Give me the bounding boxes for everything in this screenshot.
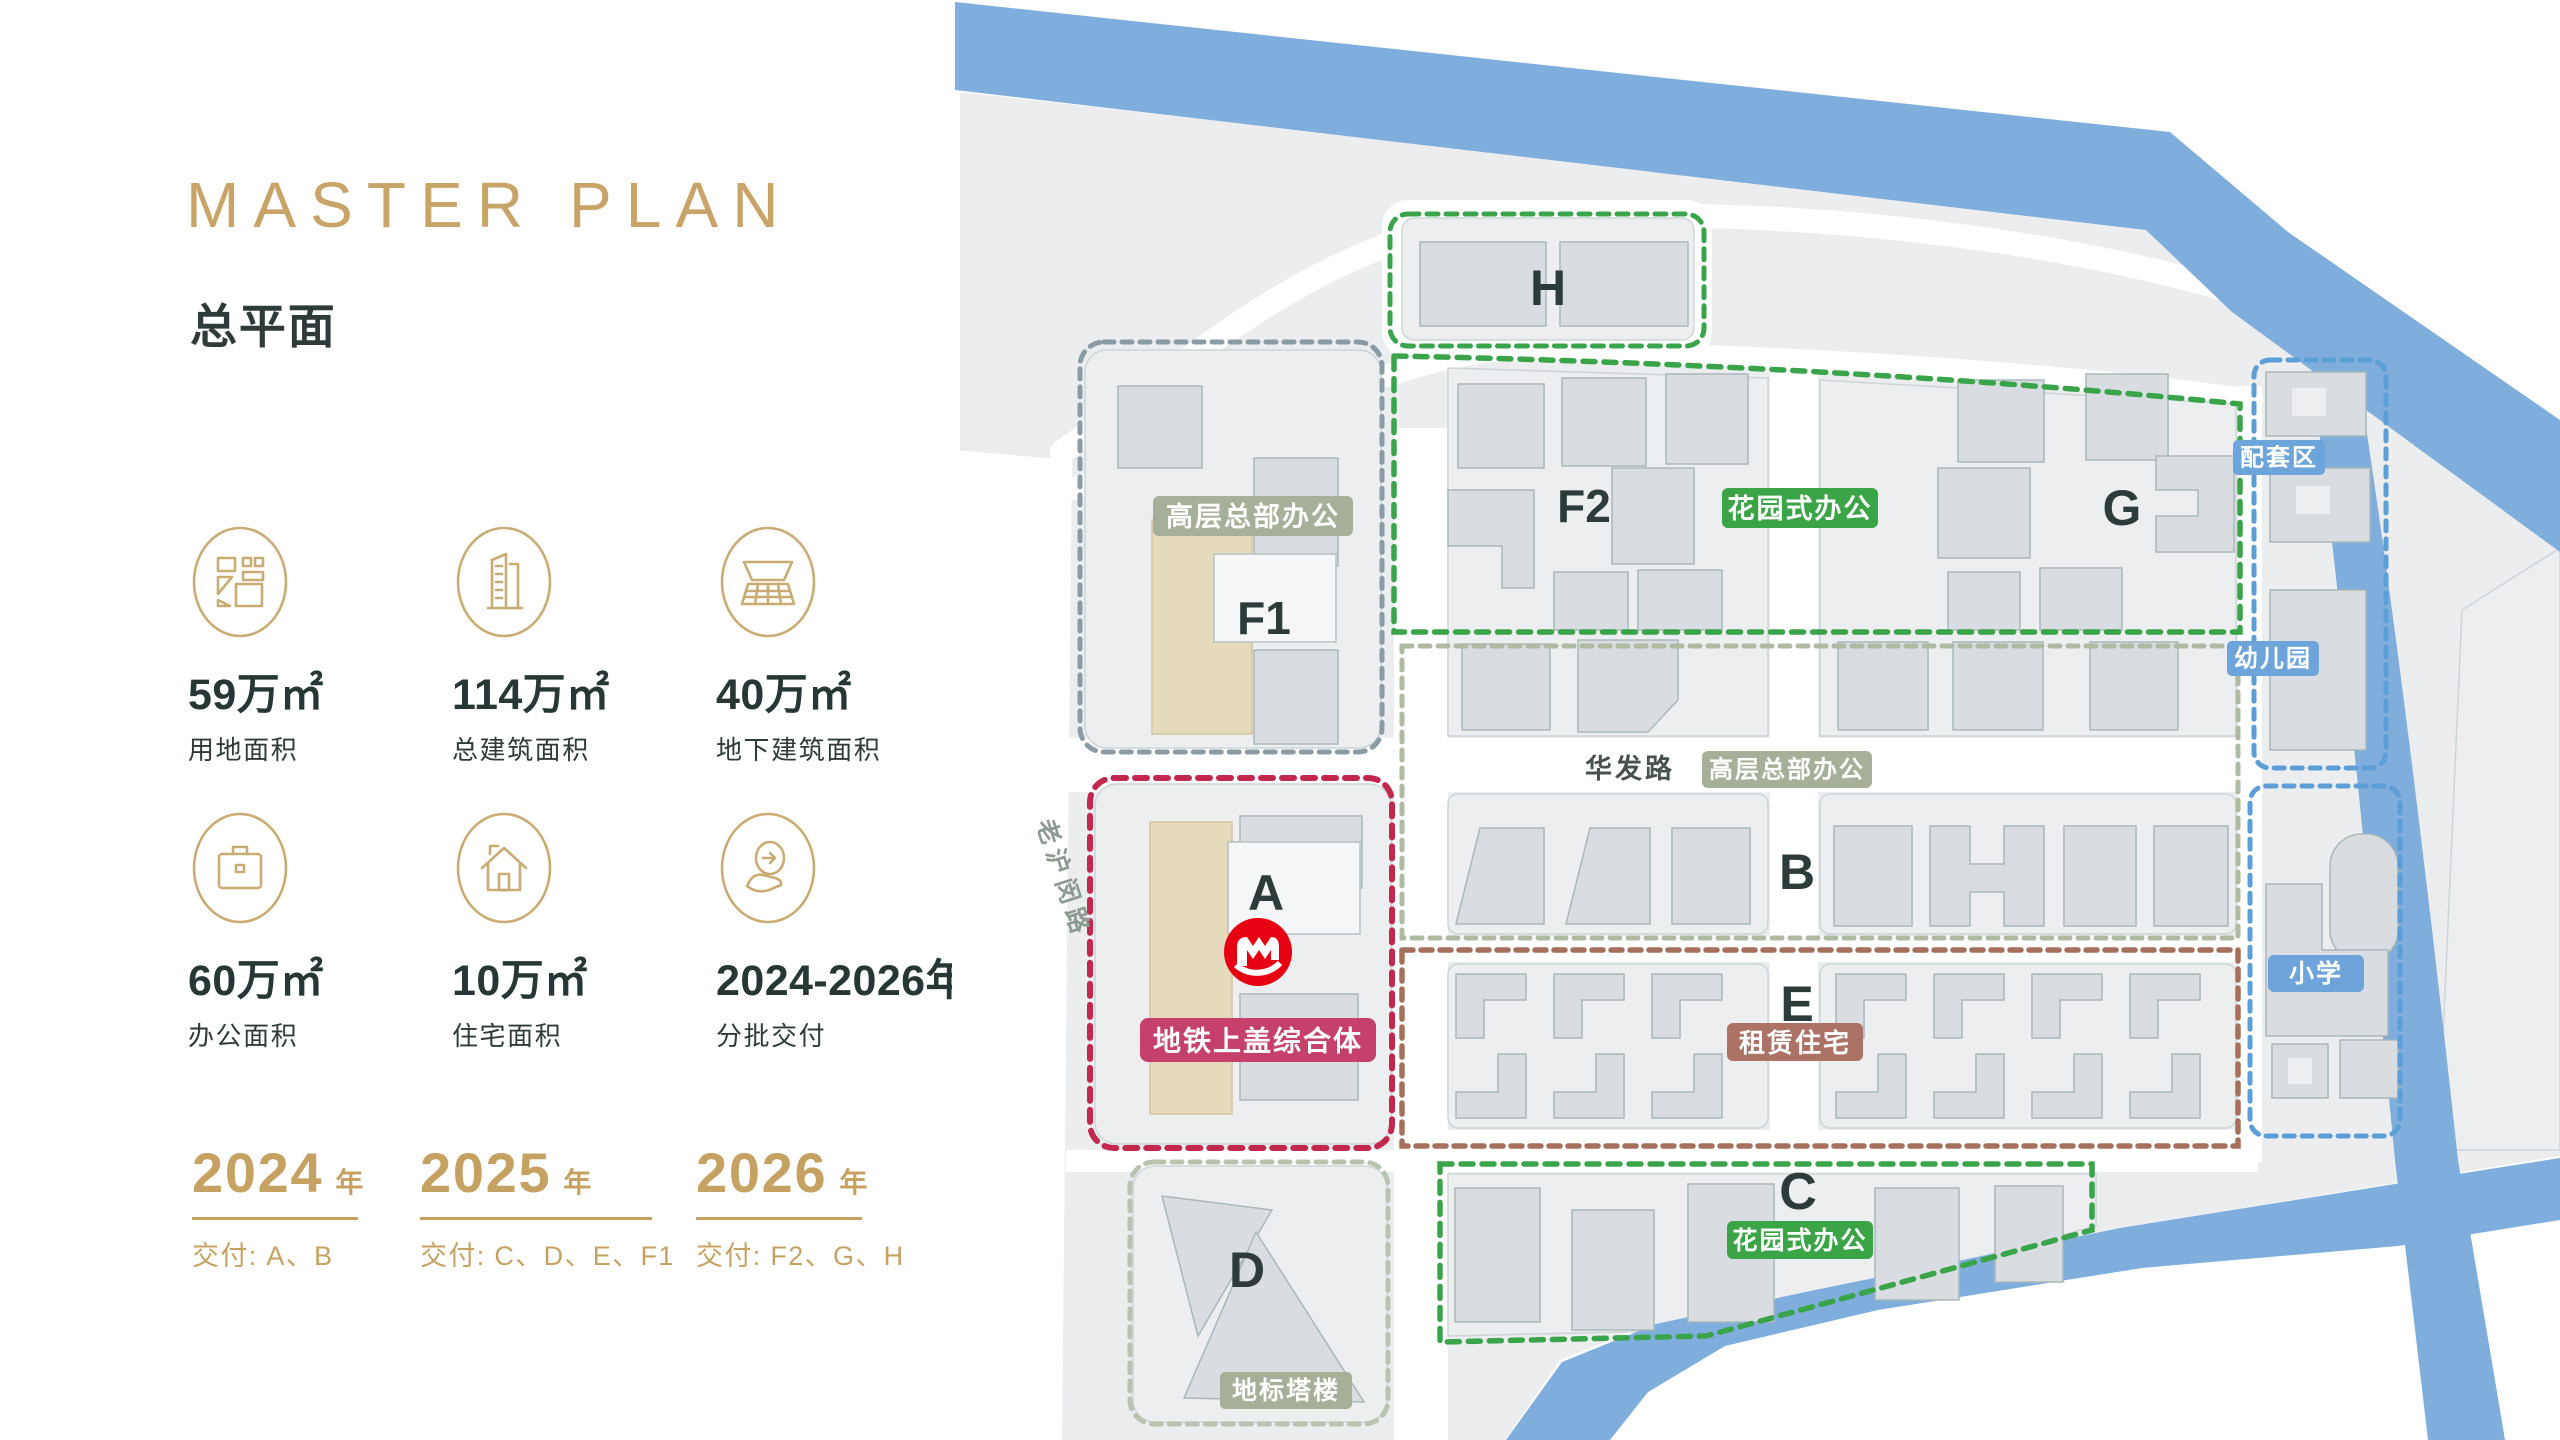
badge-garden-c: 花园式办公 — [1727, 1221, 1873, 1259]
metro-logo-icon — [1224, 918, 1292, 986]
badge-hq-f1: 高层总部办公 — [1153, 496, 1353, 536]
parcel-label-b: B — [1779, 844, 1815, 900]
badge-metro-complex: 地铁上盖综合体 — [1140, 1018, 1376, 1062]
svg-text:花园式办公: 花园式办公 — [1732, 1227, 1867, 1255]
parcel-label-c: C — [1779, 1163, 1817, 1221]
parcel-label-d: D — [1229, 1242, 1265, 1298]
parcel-label-e: E — [1780, 976, 1813, 1032]
svg-text:花园式办公: 花园式办公 — [1728, 494, 1873, 524]
parcel-label-a: A — [1248, 865, 1284, 921]
parcel-label-h: H — [1530, 260, 1566, 316]
svg-text:配套区: 配套区 — [2240, 445, 2318, 472]
svg-text:租赁住宅: 租赁住宅 — [1739, 1028, 1851, 1058]
master-plan-map: 华发路 老沪闵路 高层总部办公 高层总部办公 花园式办公 花园式办公 地铁上盖综… — [0, 0, 2560, 1440]
svg-text:小学: 小学 — [2289, 959, 2343, 988]
badge-support: 配套区 — [2233, 440, 2325, 475]
road-laohumin — [952, 450, 1072, 1440]
svg-text:幼儿园: 幼儿园 — [2234, 645, 2312, 673]
badge-landmark: 地标塔楼 — [1220, 1372, 1352, 1409]
badge-kindergarten: 幼儿园 — [2227, 641, 2319, 676]
road-label-huafa: 华发路 — [1585, 753, 1675, 784]
badge-hq-road: 高层总部办公 — [1702, 751, 1872, 788]
svg-text:地标塔楼: 地标塔楼 — [1232, 1377, 1340, 1405]
svg-text:地铁上盖综合体: 地铁上盖综合体 — [1153, 1025, 1363, 1057]
parcel-label-f2: F2 — [1557, 480, 1611, 532]
badge-garden-top: 花园式办公 — [1722, 488, 1878, 528]
svg-text:高层总部办公: 高层总部办公 — [1709, 756, 1865, 784]
badge-primary-school: 小学 — [2268, 955, 2364, 992]
parcel-label-g: G — [2103, 480, 2142, 536]
parcel-label-f1: F1 — [1237, 592, 1291, 644]
svg-text:高层总部办公: 高层总部办公 — [1166, 501, 1340, 532]
